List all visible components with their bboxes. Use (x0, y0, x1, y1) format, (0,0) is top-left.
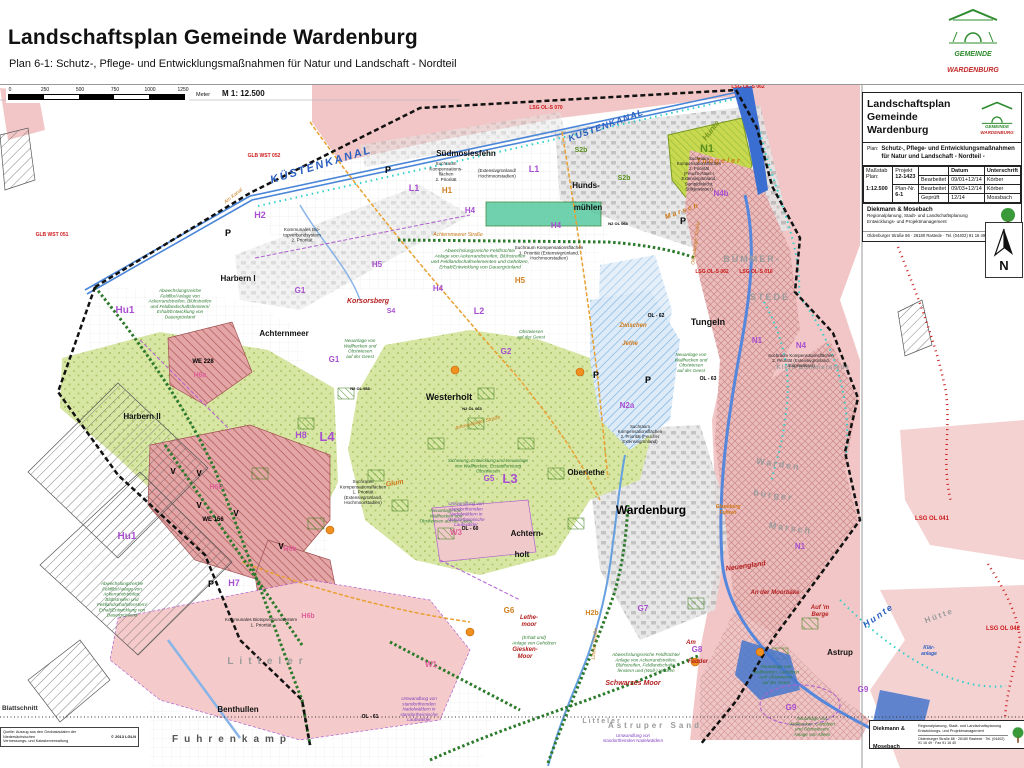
title-block-logo-text2: WARDENBURG (980, 130, 1013, 135)
map-label: N2 OL 063 (462, 406, 482, 411)
firm-box-desc-1: Regionalplanung, Stadt- und Landschaftsp… (918, 724, 1001, 728)
map-label: S2b (618, 175, 631, 182)
scale-cell: Maßstab Plan: 1:12.500 (864, 166, 893, 202)
map-label: LSG OL-S 016 (739, 269, 773, 275)
map-label: H6a (194, 372, 207, 379)
map-label: Oberlethe (567, 468, 605, 477)
firm-box-address: Oldenburger Straße 86 · 26180 Rastede · … (918, 735, 1008, 745)
map-label: Wardenburg (616, 503, 686, 517)
map-label: Litteler (227, 656, 308, 667)
map-label: OL - 61 (362, 714, 379, 720)
map-label: G5 (484, 474, 495, 483)
map-label: Fuhrenkamp (172, 734, 292, 745)
map-label: Achtern- (511, 529, 544, 538)
map-label: Harbern II (123, 412, 160, 421)
map-label: H1 (442, 186, 453, 195)
map-label: mühlen (574, 203, 603, 212)
page-subtitle: Plan 6-1: Schutz-, Pflege- und Entwicklu… (9, 58, 457, 70)
map-label: S4 (387, 308, 396, 315)
map-label: WE 228 (192, 359, 214, 365)
row-sign: Körber (984, 184, 1020, 193)
source-line-1: Quelle: Auszug aus den Geobasisdaten der… (3, 730, 76, 739)
map-label: Tungeln (691, 317, 725, 327)
map-label: Südmoslesfehn (436, 149, 496, 158)
scale-value: 1:12.500 (866, 186, 888, 192)
blattschnitt-label: Blattschnitt (2, 705, 38, 712)
map-label: An der Moorbäke (749, 590, 800, 596)
map-label: Hu1 (116, 305, 135, 316)
title-block-plan-row: Plan: Schutz-, Pflege- und Entwicklungsm… (863, 143, 1021, 166)
map-label: N1 (700, 143, 714, 155)
map-label: P (208, 579, 214, 589)
map-label: Abwechslungsreiche Feldfrüchte/Anlage vo… (431, 248, 529, 271)
map-label: L1 (529, 164, 540, 174)
map-label: LSG OL 041 (915, 516, 950, 522)
map-label: N1 (752, 336, 763, 345)
page-title: Landschaftsplan Gemeinde Wardenburg (8, 26, 418, 50)
gemeinde-logo-icon (943, 6, 1003, 44)
map-label: G6 (504, 606, 515, 615)
map-label: G1 (329, 355, 340, 364)
map-label: Abwechslungsreiche Feldfrüchte/Anlage vo… (611, 652, 680, 673)
scale-tick: 1000 (144, 87, 155, 93)
title-block-title: Landschaftsplan Gemeinde Wardenburg (867, 98, 977, 137)
plannr-value: 6-1 (895, 192, 903, 198)
map-label: G1 (295, 286, 306, 295)
map-label: P (680, 216, 686, 226)
scale-tick: 1250 (177, 87, 188, 93)
map-label: Hu1 (118, 531, 137, 542)
map-label: H2 (254, 210, 266, 220)
title-block-head: Landschaftsplan Gemeinde Wardenburg GEME… (863, 93, 1021, 143)
firm-box: Diekmann & Mosebach Regionalplanung, Sta… (869, 720, 1024, 749)
firm-box-tree-icon (1011, 726, 1024, 744)
scale-ticks: 0 250 500 750 1000 1250 (8, 87, 185, 94)
row-label-header (919, 166, 949, 175)
gemeinde-logo-text2: WARDENBURG (947, 67, 999, 74)
map-label: BÜMMER- (723, 254, 781, 264)
firm-box-name: Diekmann & Mosebach (873, 726, 905, 750)
header: Landschaftsplan Gemeinde Wardenburg Plan… (0, 0, 1024, 85)
map-label: Litteler (582, 718, 621, 725)
map-label: STEDE (750, 292, 790, 302)
map-label: H6b (209, 484, 222, 491)
title-block-table: Maßstab Plan: 1:12.500 Projekt 12-1423 D… (863, 166, 1021, 203)
map-label: G8 (692, 645, 703, 654)
plan-label: Plan: (867, 146, 878, 162)
scale-tick: 0 (9, 87, 12, 93)
map-label: Zwischen (618, 323, 647, 329)
row-sign: Körber (984, 175, 1020, 184)
map-label: N4 (796, 341, 807, 350)
title-block-logo-icon (977, 100, 1017, 124)
map-label: OL - 63 (700, 376, 717, 382)
map-label: Auf 'mBerge (810, 605, 830, 618)
row-label: Bearbeitet (919, 175, 949, 184)
map-label: Neuanlage vonWallhecken undObstwiesenauf… (344, 338, 377, 359)
map-label: Lethe-moor (520, 615, 538, 628)
map-label: H8 (295, 430, 307, 440)
map-label: G9 (858, 685, 869, 694)
map-label: V (278, 542, 284, 551)
scale-tick: 750 (111, 87, 119, 93)
map-label: H2b (585, 610, 598, 617)
map-label: G9 (786, 703, 797, 712)
map-label: N2 OL 068 (608, 221, 628, 226)
scale-tick: 250 (41, 87, 49, 93)
map-label: Achternmeerer Straße (432, 232, 483, 238)
title-block: Landschaftsplan Gemeinde Wardenburg GEME… (862, 92, 1022, 242)
project-cell: Projekt 12-1423 (893, 166, 919, 184)
project-value: 12-1423 (895, 174, 915, 180)
map-label: H6b (301, 613, 314, 620)
scale-bar-segments (8, 94, 185, 100)
map-label: P (225, 228, 231, 238)
scale-ratio: M 1: 12.500 (222, 89, 265, 98)
map-label: Neuanlage vonWallhecken undObstwiesenauf… (675, 352, 708, 373)
plan-text: Schutz-, Pflege- und Entwicklungsmaßnahm… (881, 146, 1017, 162)
gemeinde-logo: GEMEINDE WARDENBURG (930, 6, 1016, 76)
gemeinde-logo-text1: GEMEINDE (954, 51, 991, 58)
map-label: N2a (620, 401, 635, 410)
map-label: L1 (409, 183, 420, 193)
north-label: N (999, 258, 1008, 273)
map-label: H7 (228, 578, 240, 588)
map-label: H5 (515, 276, 526, 285)
col-date: Datum (949, 166, 985, 175)
map-label: V (233, 509, 239, 518)
map-label: H4 (465, 206, 476, 215)
map-label: L4 (319, 429, 335, 444)
map-label: GLB WST 051 (36, 232, 69, 238)
map-label: (Extensivgrünland/Hochmoorstadien) (478, 168, 517, 178)
row-sign: Mossbach (984, 193, 1020, 202)
firm-desc-2: Entwicklungs- und Projektmanagement (867, 219, 947, 224)
map-label: Harbern I (220, 274, 255, 283)
map-label: Westerholt (426, 392, 472, 402)
title-block-logo: GEMEINDE WARDENBURG (977, 100, 1017, 136)
firm-box-desc-2: Entwicklungs- und Projektmanagement (918, 729, 984, 733)
map-label: OL - 62 (648, 313, 665, 319)
map-label: Obstwiesenauf der Geest (517, 329, 546, 339)
map-label: G2 (501, 347, 512, 356)
map-label: GLB WST 052 (248, 153, 281, 159)
map-label: V (170, 467, 176, 476)
map-label: LSG OL-S 070 (529, 105, 563, 111)
col-sign: Unterschrift (984, 166, 1020, 175)
scale-unit: Meter (196, 92, 210, 98)
scale-label: Maßstab Plan: (866, 168, 887, 180)
source-credit: © 2013 LGLN (111, 734, 136, 739)
title-block-title-1: Landschaftsplan (867, 98, 950, 110)
row-date: 09/03+12/14 (949, 184, 985, 193)
north-arrow-icon (993, 228, 1015, 258)
map-label: holt (515, 550, 530, 559)
map-label: WE 156 (202, 517, 224, 523)
map-label: LSG OL 042 (986, 626, 1021, 632)
title-block-title-2: Gemeinde Wardenburg (867, 111, 928, 136)
title-block-logo-text1: GEMEINDE (985, 124, 1009, 129)
map-label: G7 (638, 604, 649, 613)
map-label: N2 OL 958 (350, 386, 370, 391)
scale-tick: 500 (76, 87, 84, 93)
map-label: Achternmeer (259, 329, 308, 338)
map-label: Jethe (622, 341, 638, 347)
scale-bar: 0 250 500 750 1000 1250 (6, 86, 189, 103)
map-label: Korsorsberg (347, 298, 390, 305)
map-label: W1 (425, 660, 438, 669)
map-label: H4 (551, 221, 562, 230)
map-label: S2b (575, 147, 588, 154)
map-label: N1 (795, 542, 806, 551)
row-label: Geprüft (919, 193, 949, 202)
map-label: H5 (372, 260, 383, 269)
map-label: L2 (474, 306, 485, 316)
map-label: L3 (502, 471, 517, 486)
map-label: Hunds- (572, 181, 600, 190)
map-label: P (593, 370, 599, 380)
map-label: N4b (713, 189, 728, 198)
map-label: H4 (433, 284, 444, 293)
north-arrow: N (985, 222, 1023, 278)
map-label: V (196, 469, 202, 478)
map-label: Astruper Sand (608, 721, 702, 730)
map-label: Schwarzes Moor (605, 680, 662, 687)
row-date: 09/01+12/14 (949, 175, 985, 184)
map-label: Benthullen (217, 705, 258, 714)
map-label: Astrup (827, 648, 853, 657)
map-label: H6b (283, 546, 296, 553)
map-label: P (645, 375, 651, 385)
map-label: Fadder (688, 659, 709, 665)
source-box: Quelle: Auszug aus den Geobasisdaten der… (0, 727, 139, 747)
map-label: P (385, 165, 391, 175)
firm-desc-1: Regionalplanung, Stadt- und Landschaftsp… (867, 213, 968, 218)
row-date: 12/14 (949, 193, 985, 202)
map-label: LSG OL-S 062 (695, 269, 729, 275)
map-label: V (196, 501, 202, 510)
plannr-cell: Plan-Nr. 6-1 (893, 184, 919, 202)
row-label: Bearbeitet (919, 184, 949, 193)
source-line-2: Vermessungs- und Katasterverwaltung (3, 739, 68, 743)
